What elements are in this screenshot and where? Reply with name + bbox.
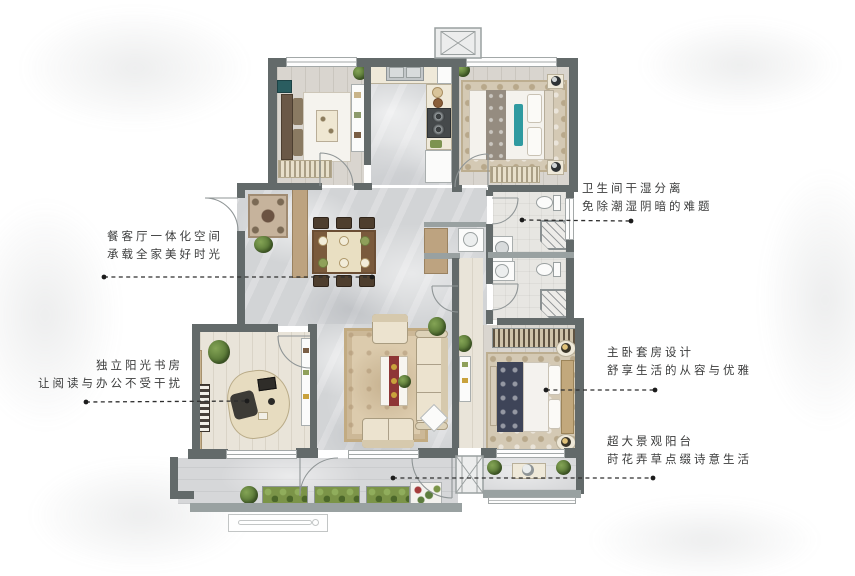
callout-line: 承载全家美好时光 xyxy=(107,247,223,265)
callout-line: 免除潮湿阴暗的难题 xyxy=(582,199,713,217)
callout-line: 主卧套房设计 xyxy=(607,345,752,363)
callout-line: 让阅读与办公不受干扰 xyxy=(30,376,183,394)
callout-line: 莳花弄草点缀诗意生活 xyxy=(607,452,752,470)
plan-overlay xyxy=(0,0,855,576)
door-arc xyxy=(278,336,310,368)
leader-dot xyxy=(245,399,250,404)
floorplan-page: 卫生间干湿分离 免除潮湿阴暗的难题 餐客厅一体化空间 承载全家美好时光 独立阳光… xyxy=(0,0,855,576)
leader-dot xyxy=(370,275,375,280)
leader-line xyxy=(86,401,247,402)
leader-dot xyxy=(102,275,107,280)
callout-line: 独立阳光书房 xyxy=(30,358,183,376)
leader-dot xyxy=(84,400,89,405)
leader-dot xyxy=(653,388,658,393)
callout-master: 主卧套房设计 舒享生活的从容与优雅 xyxy=(607,345,752,380)
leader-dot xyxy=(629,219,634,224)
leader-line xyxy=(522,220,631,221)
door-arc xyxy=(432,286,458,312)
leader-dot xyxy=(651,476,656,481)
callout-line: 超大景观阳台 xyxy=(607,434,752,452)
door-arc xyxy=(300,458,338,496)
shaft-x-icon xyxy=(456,456,483,493)
door-arc xyxy=(455,154,488,187)
door-arc xyxy=(205,198,238,231)
leader-dot xyxy=(520,218,525,223)
door-arc xyxy=(492,284,518,310)
callout-line: 舒享生活的从容与优雅 xyxy=(607,363,752,381)
callout-bathroom: 卫生间干湿分离 免除潮湿阴暗的难题 xyxy=(582,181,713,216)
callout-line: 餐客厅一体化空间 xyxy=(107,229,223,247)
callout-dining: 餐客厅一体化空间 承载全家美好时光 xyxy=(107,229,223,264)
callout-line: 卫生间干湿分离 xyxy=(582,181,713,199)
leader-dot xyxy=(391,476,396,481)
door-arc xyxy=(492,198,518,224)
leader-dot xyxy=(544,388,549,393)
callout-study: 独立阳光书房 让阅读与办公不受干扰 xyxy=(30,358,183,393)
shaft-x-icon xyxy=(435,28,481,58)
door-arc xyxy=(320,153,353,186)
callout-balcony: 超大景观阳台 莳花弄草点缀诗意生活 xyxy=(607,434,752,469)
